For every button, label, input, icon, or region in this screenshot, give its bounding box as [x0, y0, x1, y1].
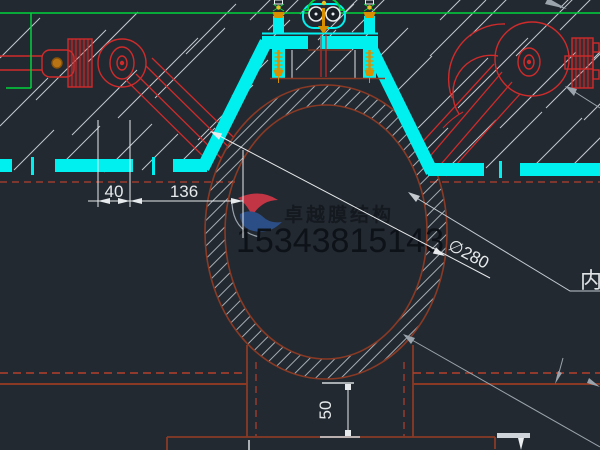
dim-136-text: 136: [170, 182, 198, 201]
dim-50-text: 50: [316, 401, 335, 420]
cad-drawing-canvas: 卓越膜结构 15343815143: [0, 0, 600, 450]
pin-bolt-icon: [52, 58, 62, 68]
dim-40-text: 40: [105, 182, 124, 201]
bottom-dim-bar: [497, 433, 530, 438]
membrane-detail-drawing: 卓越膜结构 15343815143: [0, 0, 600, 450]
right-edge-label: 内: [580, 268, 600, 293]
watermark-phone-number: 15343815143: [236, 222, 444, 260]
